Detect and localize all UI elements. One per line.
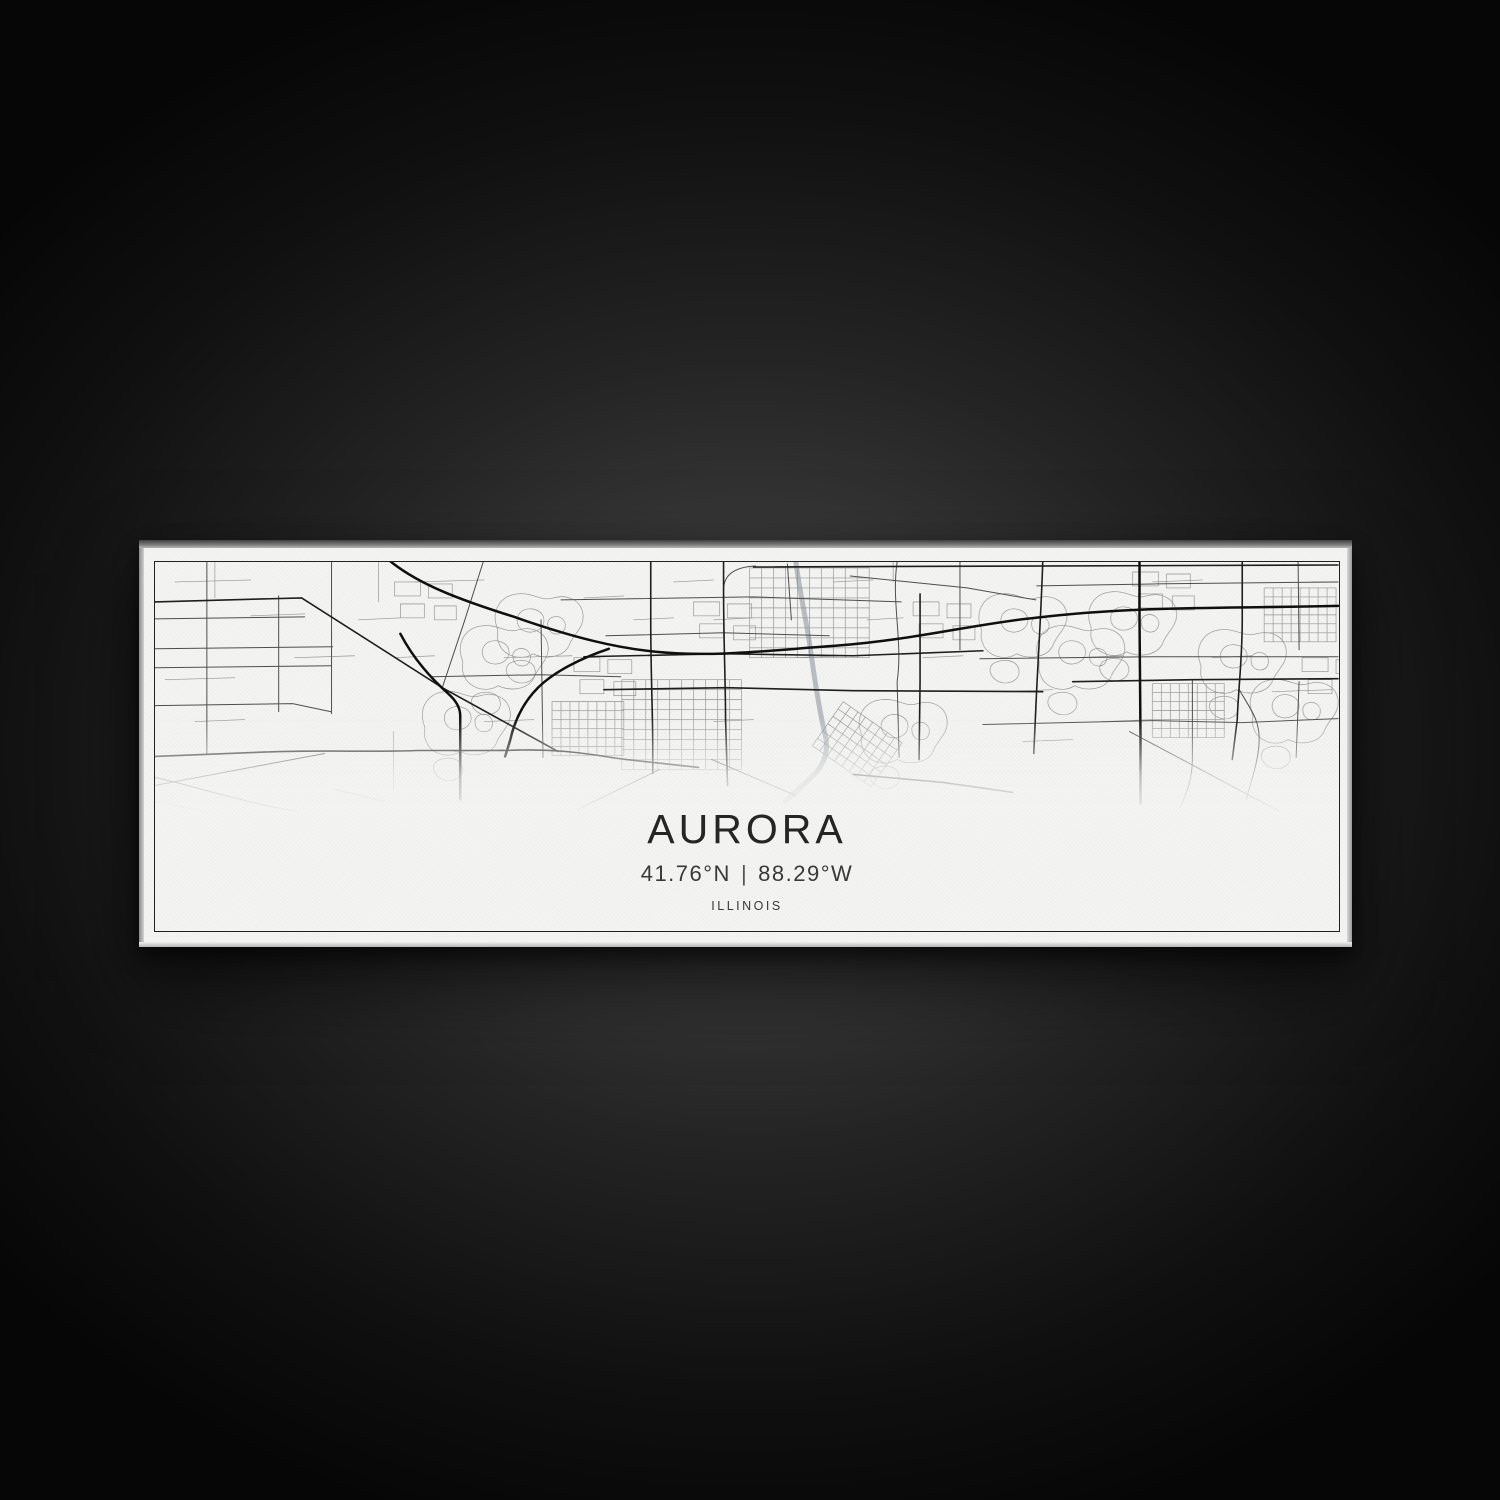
canvas-bottom-edge [139, 942, 1352, 947]
longitude-value: 88.29°W [758, 861, 853, 886]
state-label: ILLINOIS [155, 899, 1339, 913]
studio-background: AURORA 41.76°N|88.29°W ILLINOIS [0, 0, 1500, 1500]
canvas-top-edge [139, 540, 1352, 548]
canvas-face: AURORA 41.76°N|88.29°W ILLINOIS [144, 548, 1347, 942]
coordinate-separator: | [741, 861, 748, 886]
canvas-print: AURORA 41.76°N|88.29°W ILLINOIS [139, 540, 1352, 947]
canvas-right-edge [1347, 548, 1352, 942]
city-title: AURORA [155, 809, 1339, 850]
map-label-block: AURORA 41.76°N|88.29°W ILLINOIS [155, 809, 1339, 913]
map-border-frame: AURORA 41.76°N|88.29°W ILLINOIS [154, 561, 1340, 932]
latitude-value: 41.76°N [641, 861, 731, 886]
city-coordinates: 41.76°N|88.29°W [155, 861, 1339, 887]
canvas-left-edge [139, 548, 144, 942]
